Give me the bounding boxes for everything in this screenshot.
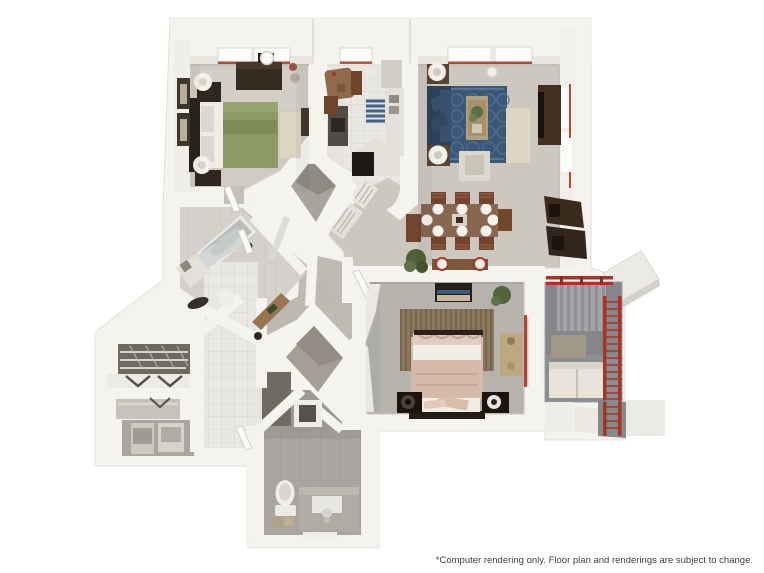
svg-text:*Computer rendering only. Floo: *Computer rendering only. Floor plan and…	[436, 555, 753, 566]
